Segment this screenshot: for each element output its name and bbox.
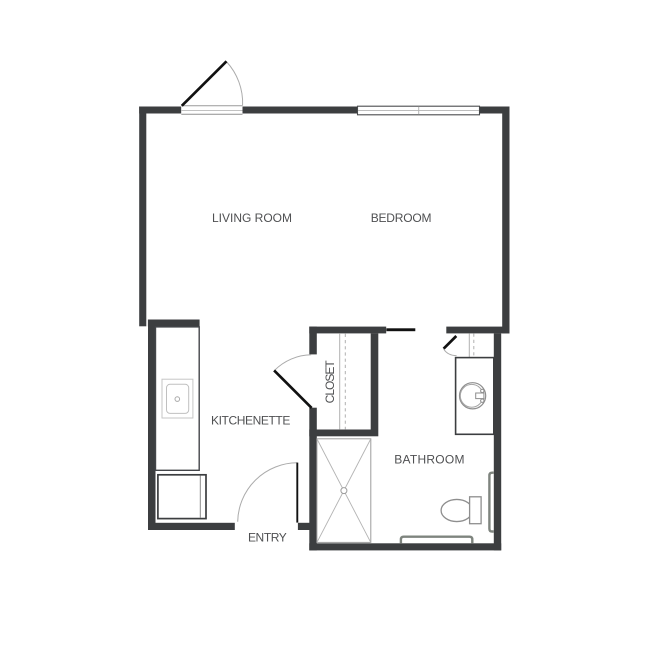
svg-text:CLOSET: CLOSET <box>323 360 337 404</box>
svg-text:KITCHENETTE: KITCHENETTE <box>211 414 290 428</box>
svg-text:BEDROOM: BEDROOM <box>371 211 432 225</box>
svg-text:BATHROOM: BATHROOM <box>394 453 464 467</box>
svg-text:ENTRY: ENTRY <box>248 531 287 545</box>
svg-text:LIVING ROOM: LIVING ROOM <box>212 211 292 225</box>
